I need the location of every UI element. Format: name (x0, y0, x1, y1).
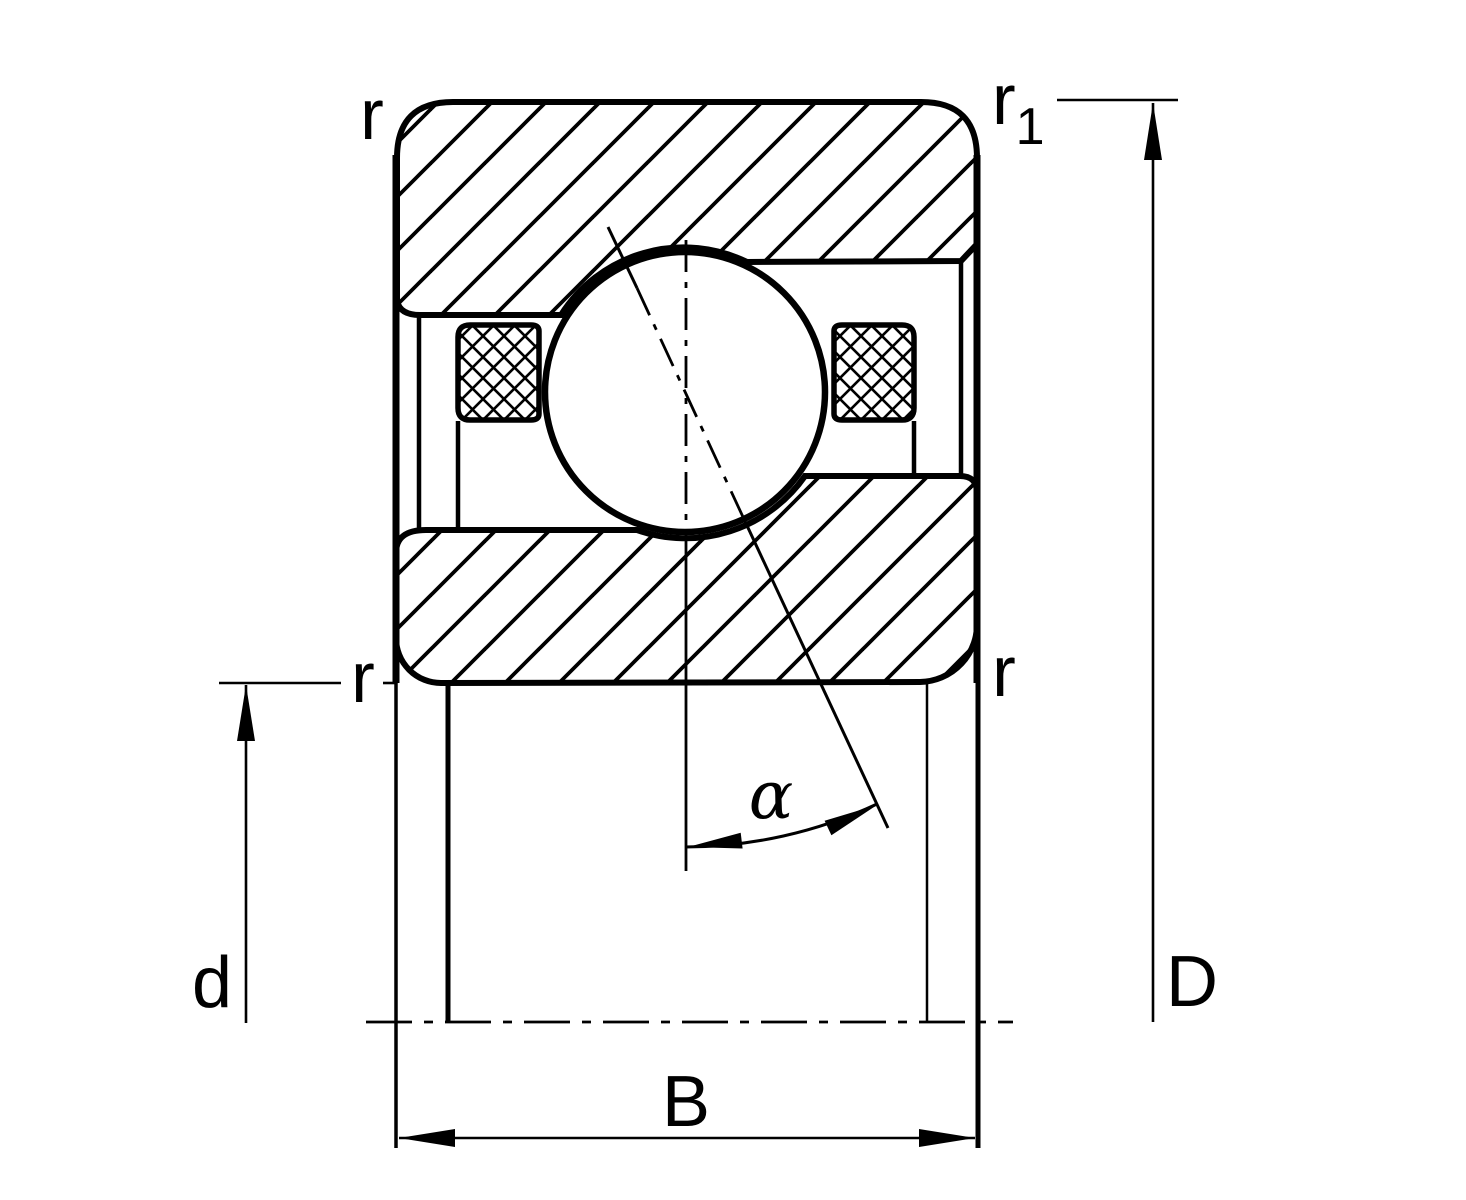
label-bore-diameter: d (192, 943, 232, 1023)
label-chamfer-top-left: r (360, 76, 384, 155)
label-chamfer-bottom-right: r (992, 633, 1016, 712)
dim-B-arrowhead-right (919, 1129, 975, 1147)
label-contact-angle: α (749, 757, 794, 834)
contact-angle-arrowhead-right (825, 805, 877, 835)
seal-right (834, 325, 914, 420)
seal-left (458, 325, 539, 420)
label-chamfer-top-right: r1 (992, 61, 1045, 156)
dim-d-arrowhead (237, 685, 255, 741)
label-chamfer-bottom-left: r (351, 639, 375, 718)
bearing-cross-section-diagram: r r1 r r d D B α (0, 0, 1466, 1200)
dim-D-arrowhead (1144, 103, 1162, 160)
label-outside-diameter: D (1166, 942, 1218, 1022)
bearing-drawing-canvas: r r1 r r d D B α (0, 0, 1466, 1200)
label-width: B (662, 1062, 710, 1142)
contact-angle-arrowhead-left (688, 833, 743, 849)
dim-B-arrowhead-left (399, 1129, 455, 1147)
